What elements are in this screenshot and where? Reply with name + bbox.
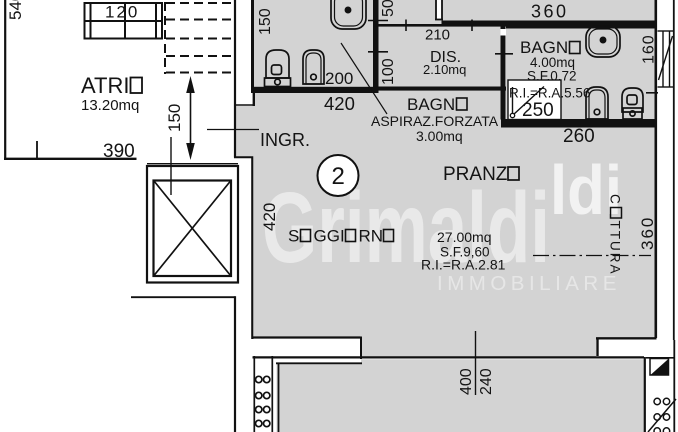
svg-text:GGI: GGI <box>314 227 345 246</box>
svg-text:ATRI: ATRI <box>81 73 129 98</box>
svg-text:420: 420 <box>324 93 355 114</box>
svg-text:ASPIRAZ.FORZATA: ASPIRAZ.FORZATA <box>371 113 499 129</box>
svg-text:100: 100 <box>380 58 397 85</box>
svg-text:R.I.=R.A.5.56: R.I.=R.A.5.56 <box>509 86 590 101</box>
svg-text:120: 120 <box>105 3 139 22</box>
svg-text:2: 2 <box>332 163 345 190</box>
svg-text:150: 150 <box>257 8 274 35</box>
svg-text:200: 200 <box>325 69 353 88</box>
svg-text:2.10mq: 2.10mq <box>423 62 466 77</box>
svg-text:PRANZ: PRANZ <box>443 164 508 185</box>
svg-text:BAGN: BAGN <box>407 95 455 114</box>
svg-text:360: 360 <box>531 2 569 22</box>
svg-text:390: 390 <box>103 141 135 162</box>
svg-text:13.20mq: 13.20mq <box>81 97 139 114</box>
svg-text:210: 210 <box>425 27 450 44</box>
svg-text:240: 240 <box>478 368 495 395</box>
svg-text:360: 360 <box>638 216 657 250</box>
svg-text:3.00mq: 3.00mq <box>416 128 463 144</box>
svg-text:260: 260 <box>563 126 595 147</box>
svg-text:INGR.: INGR. <box>260 130 310 150</box>
svg-text:420: 420 <box>260 203 279 231</box>
svg-text:150: 150 <box>165 104 184 132</box>
svg-text:RN: RN <box>359 227 384 246</box>
svg-text:Grimaldi: Grimaldi <box>262 172 550 284</box>
svg-text:250: 250 <box>522 100 554 121</box>
svg-text:IMMOBILIARE: IMMOBILIARE <box>437 272 621 295</box>
svg-text:C: C <box>608 194 623 206</box>
svg-text:27.00mq: 27.00mq <box>437 229 491 245</box>
svg-text:400: 400 <box>458 368 475 395</box>
svg-text:S: S <box>288 227 299 246</box>
svg-text:540: 540 <box>6 0 25 20</box>
svg-text:R.I.=R.A.2.81: R.I.=R.A.2.81 <box>421 257 506 273</box>
svg-text:TTURA: TTURA <box>608 221 623 276</box>
svg-text:50: 50 <box>380 0 397 17</box>
